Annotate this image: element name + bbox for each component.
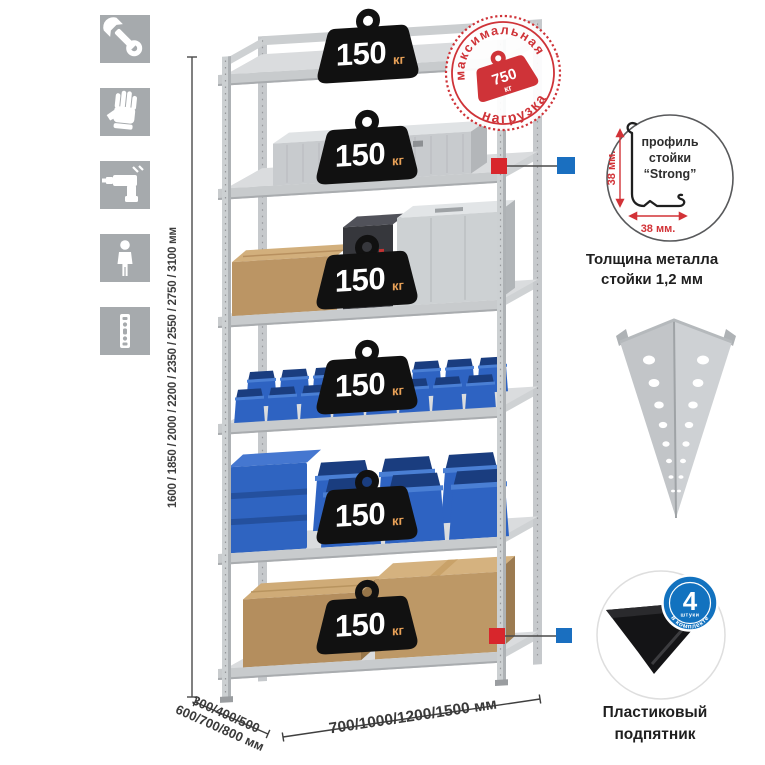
svg-text:“Strong”: “Strong”: [644, 167, 697, 181]
foot-count-badge: 4 штуки в комплекте: [663, 576, 718, 631]
svg-text:штуки: штуки: [680, 613, 699, 619]
callout-top: [491, 157, 575, 174]
callout-marker-blue-top: [557, 157, 575, 174]
svg-text:38 мм.: 38 мм.: [606, 151, 618, 186]
callout-marker-blue-bottom: [556, 628, 572, 643]
callout-marker-red-top: [491, 158, 507, 174]
callout-marker-red-bottom: [489, 628, 505, 644]
callout-bottom: [489, 628, 572, 644]
svg-text:стойки: стойки: [649, 151, 691, 165]
profile-detail-circle: 38 мм. 38 мм. профиль стойки “Strong”: [602, 110, 738, 246]
svg-text:38 мм.: 38 мм.: [641, 223, 676, 235]
svg-text:4: 4: [683, 586, 698, 616]
product-infographic: 1600 / 1850 / 2000 / 2200 / 2350 / 2550 …: [0, 0, 765, 765]
svg-text:профиль: профиль: [641, 135, 698, 149]
plastic-foot-image: 4 штуки в комплекте: [594, 568, 729, 703]
max-load-stamp: 750 кг максимальная нагрузка: [438, 8, 568, 138]
profile-caption: Толщина металла стойки 1,2 мм: [572, 250, 732, 290]
height-dimension-line: [187, 57, 197, 697]
corner-profile-image: [616, 310, 736, 525]
foot-caption: Пластиковый подпятник: [575, 702, 735, 746]
